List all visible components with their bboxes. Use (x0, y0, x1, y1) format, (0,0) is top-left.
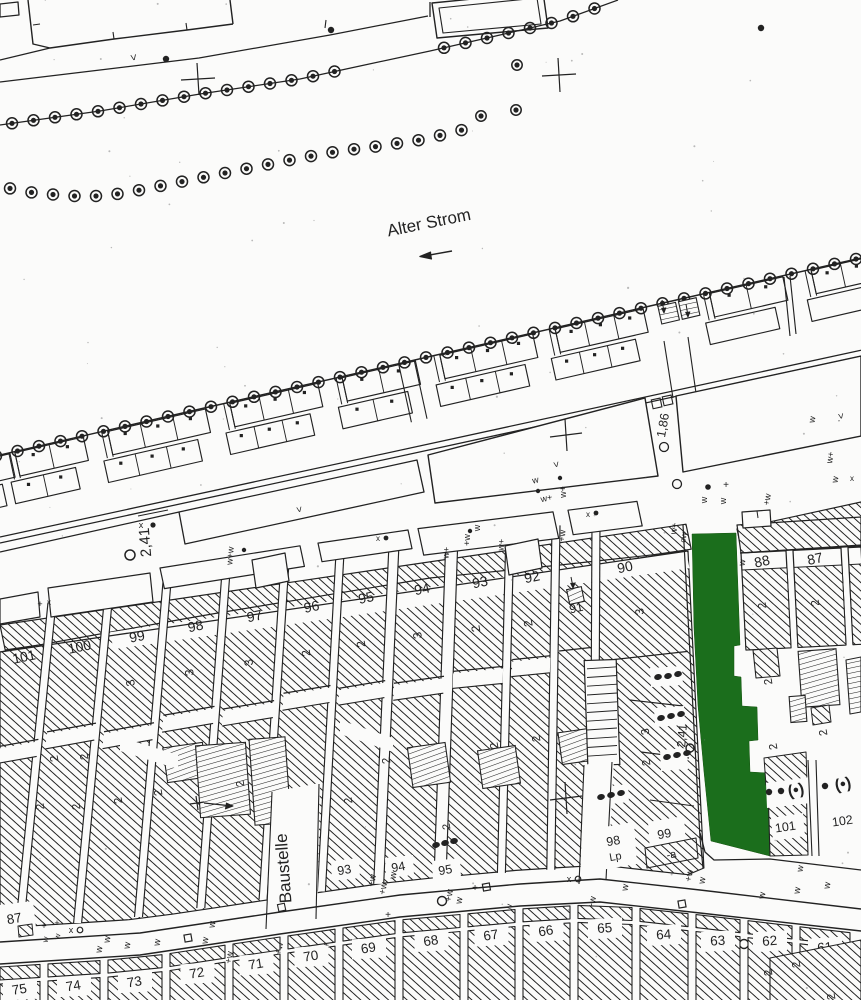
svg-text:w: w (699, 496, 709, 504)
svg-text:+w: +w (366, 873, 379, 887)
svg-text:x: x (139, 520, 144, 530)
svg-text:+w: +w (557, 529, 568, 542)
svg-text:+: + (385, 910, 391, 921)
svg-text:2,41: 2,41 (136, 527, 155, 558)
svg-text:2,41: 2,41 (674, 723, 690, 748)
svg-text:+w: +w (761, 492, 773, 506)
svg-text:101: 101 (774, 819, 797, 836)
svg-text:w+: w+ (558, 486, 568, 499)
svg-text:x: x (69, 925, 74, 935)
svg-text:x: x (586, 510, 590, 519)
svg-text:70: 70 (302, 947, 319, 964)
svg-text:+w: +w (462, 534, 472, 546)
svg-text:+: + (472, 883, 478, 894)
svg-text:+: + (37, 599, 42, 609)
svg-text:+w: +w (377, 881, 390, 895)
svg-text:102: 102 (831, 813, 854, 830)
svg-text:+w: +w (683, 868, 696, 882)
svg-text:w: w (718, 497, 728, 505)
svg-text:74: 74 (65, 977, 83, 994)
svg-text:63: 63 (710, 933, 726, 949)
svg-text:71: 71 (247, 955, 264, 972)
svg-text:+: + (723, 480, 729, 491)
svg-text:95: 95 (437, 862, 453, 878)
svg-text:w+: w+ (440, 546, 451, 560)
svg-text:75: 75 (11, 981, 28, 998)
svg-text:93: 93 (336, 862, 352, 878)
svg-text:65: 65 (597, 920, 613, 936)
svg-text:x: x (850, 474, 854, 483)
svg-text:w: w (472, 524, 482, 532)
svg-text:w+: w+ (495, 538, 506, 552)
svg-text:73: 73 (126, 973, 143, 990)
svg-text:87: 87 (6, 910, 23, 927)
svg-text:(•): (•) (833, 775, 852, 795)
svg-text:72: 72 (188, 964, 205, 981)
svg-text:91: 91 (568, 600, 585, 617)
svg-text:64: 64 (656, 926, 673, 942)
svg-text:x: x (376, 534, 380, 543)
svg-text:62: 62 (762, 933, 778, 949)
svg-text:66: 66 (537, 922, 554, 939)
svg-text:x: x (567, 874, 572, 884)
svg-text:99: 99 (656, 826, 672, 842)
svg-text:67: 67 (482, 927, 499, 944)
svg-text:(•): (•) (786, 781, 805, 801)
svg-text:69: 69 (360, 939, 377, 956)
svg-text:98: 98 (605, 833, 621, 849)
svg-text:+: + (54, 918, 59, 928)
svg-text:w+w: w+w (224, 546, 236, 567)
svg-text:+: + (41, 921, 46, 931)
svg-text:Lp: Lp (608, 850, 622, 864)
svg-text:x: x (47, 598, 51, 607)
svg-text:68: 68 (422, 932, 439, 949)
